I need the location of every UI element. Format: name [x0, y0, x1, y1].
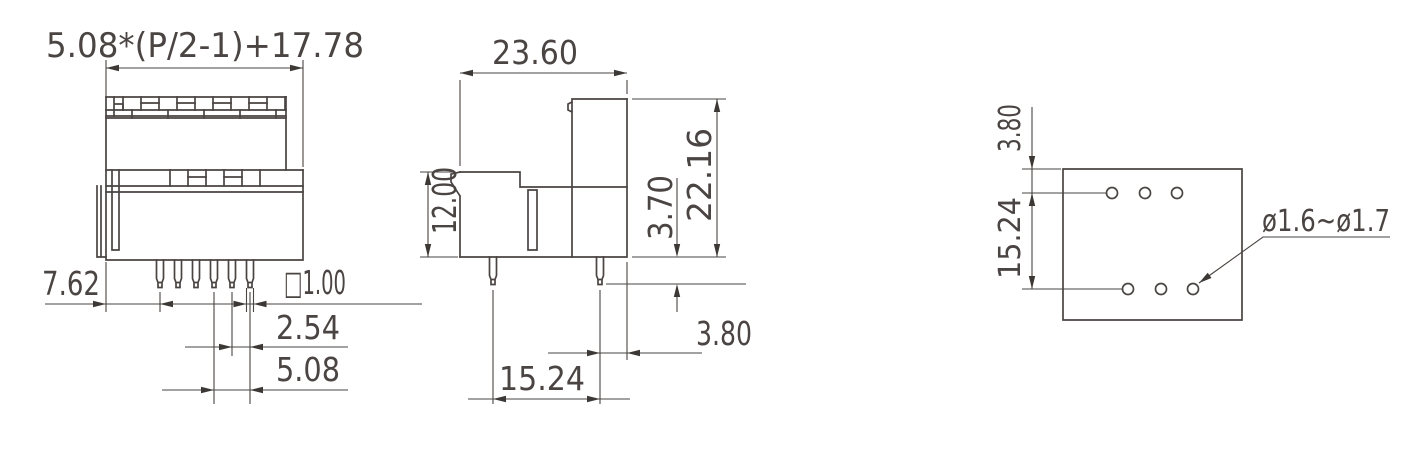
dim-side-depth: 23.60: [492, 33, 578, 72]
hole-top-3: [1172, 188, 1183, 199]
dim-side-pin-spacing: 15.24: [499, 359, 585, 398]
dim-front-pitch-5-08: 5.08: [276, 350, 340, 389]
dim-bottom-row-spacing: 15.24: [993, 197, 1028, 279]
side-view: 23.60 12.00 22.16 3.70 3.80: [420, 33, 752, 404]
bottom-dimensions: 3.80 15.24 ø1.6~ø1.7: [993, 104, 1390, 289]
hole-bottom-2: [1156, 284, 1167, 295]
hole-bottom-3: [1188, 284, 1199, 295]
hole-bottom-1: [1123, 284, 1134, 295]
footprint-outline: [1063, 169, 1242, 320]
dim-side-pin-length: 3.70: [641, 175, 680, 240]
hole-top-1: [1107, 188, 1118, 199]
dim-front-pitch-2-54: 2.54: [276, 308, 340, 347]
terminal-block-drawing: 5.08*(P/2-1)+17.78 7.62 □1.00 2.54 5.08: [0, 0, 1421, 454]
front-view: 5.08*(P/2-1)+17.78 7.62 □1.00 2.54 5.08: [42, 26, 422, 404]
side-dimensions: 23.60 12.00 22.16 3.70 3.80: [420, 33, 752, 404]
side-housing-outline: [451, 99, 627, 257]
hole-top-2: [1140, 188, 1151, 199]
dim-side-front-height: 12.00: [425, 167, 464, 234]
dim-side-pin-to-edge: 3.80: [696, 314, 752, 353]
front-pins: [157, 260, 254, 288]
dim-front-width-formula: 5.08*(P/2-1)+17.78: [46, 26, 364, 66]
dim-bottom-edge-to-row: 3.80: [993, 104, 1028, 152]
front-dimensions: 5.08*(P/2-1)+17.78 7.62 □1.00 2.54 5.08: [42, 26, 422, 404]
front-housing-outline: [97, 97, 303, 260]
dim-bottom-hole-dia: ø1.6~ø1.7: [1262, 204, 1390, 239]
technical-drawing-sheet: 5.08*(P/2-1)+17.78 7.62 □1.00 2.54 5.08: [0, 0, 1421, 454]
footprint-holes: [1107, 188, 1199, 295]
dim-front-pin-square: □1.00: [284, 263, 346, 302]
dim-side-total-height: 22.16: [680, 128, 719, 222]
bottom-view: 3.80 15.24 ø1.6~ø1.7: [993, 104, 1390, 320]
dim-front-edge-to-pin: 7.62: [42, 264, 100, 303]
side-pins: [490, 257, 604, 285]
